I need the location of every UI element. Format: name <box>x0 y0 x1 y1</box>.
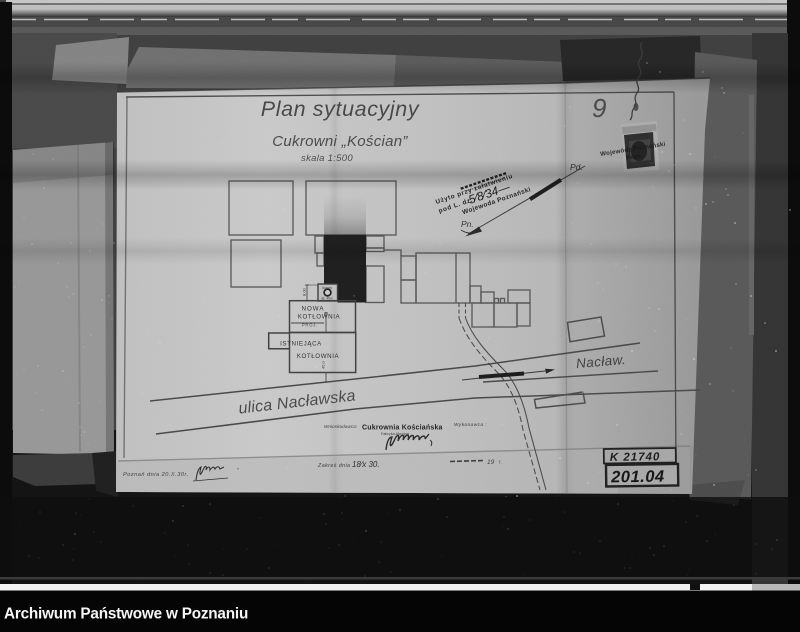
svg-text:Archiwum Państwowe w Poznaniu: Archiwum Państwowe w Poznaniu <box>4 606 248 623</box>
